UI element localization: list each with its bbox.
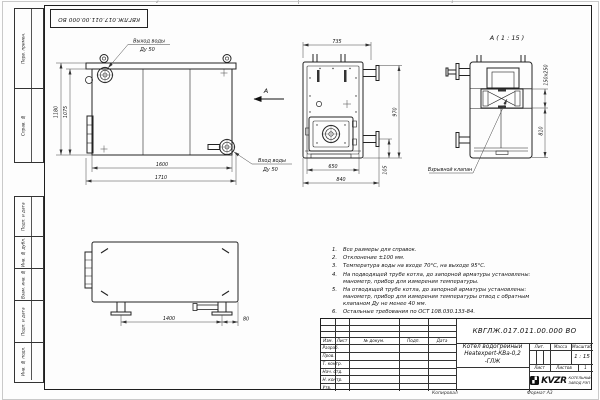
note-number: 4. xyxy=(332,272,343,286)
dim-840: 840 xyxy=(336,177,345,183)
view-detail xyxy=(446,55,532,158)
dim-1075: 1075 xyxy=(63,106,69,118)
view-side-dims xyxy=(56,45,292,186)
note-item: 3.Температура воды на входе 70°С, на вых… xyxy=(332,263,578,270)
dim-970: 970 xyxy=(393,107,399,116)
tb-header-list: Лист xyxy=(335,337,349,344)
drawing-sheet: 2 1 КВГЛЖ.017.011.00.000 ВО Перв. примен… xyxy=(0,0,600,400)
tb-role-razrab: Разраб. xyxy=(321,344,349,352)
note-text: Все размеры для справок. xyxy=(343,247,578,254)
tb-lit-label: Лит. xyxy=(529,343,550,350)
note-number: 2. xyxy=(332,255,343,262)
outlet-dn-label: Ду 50 xyxy=(139,47,155,53)
note-number: 6. xyxy=(332,309,343,316)
note-item: 2.Отклонение ±100 мм. xyxy=(332,255,578,262)
outlet-label: Выход воды xyxy=(133,39,165,45)
view-detail-dims xyxy=(429,89,548,173)
tb-sheet-label: Лист xyxy=(529,364,550,371)
tb-company-logo: ▞ KVZR КОТЕЛЬНЫЙ ЗАВОД РЭП xyxy=(529,371,593,390)
format-label: Формат А3 xyxy=(527,391,553,396)
note-text: На подводящей трубе котла, до запорной а… xyxy=(343,272,578,286)
note-item: 1.Все размеры для справок. xyxy=(332,247,578,254)
tb-scale-value: 1 : 15 xyxy=(571,350,593,364)
tb-company-line2: ЗАВОД РЭП xyxy=(569,381,592,385)
dim-1180: 1180 xyxy=(54,106,60,118)
view-front xyxy=(303,54,379,158)
tb-role-nkontr: Н. контр. xyxy=(321,375,349,383)
tb-scale-label: Масштаб xyxy=(571,343,593,350)
tb-company-name: КОТЕЛЬНЫЙ ЗАВОД РЭП xyxy=(569,376,592,385)
view-side xyxy=(86,55,237,156)
tb-product-name: Котел водогрейный Heatexpert-КВа-0,2 -ГЛ… xyxy=(456,343,529,367)
tb-role-nachotd: Нач. отд. xyxy=(321,368,349,376)
tb-mass-label: Масса xyxy=(550,343,571,350)
kvzr-logo-icon: ▞ xyxy=(530,376,539,385)
note-item: 5.На отводящей трубе котла, до запорной … xyxy=(332,287,578,308)
dim-1710: 1710 xyxy=(155,175,167,181)
dim-80: 80 xyxy=(243,317,249,323)
view-top xyxy=(85,242,238,315)
tb-company-line1: КОТЕЛЬНЫЙ xyxy=(569,376,592,380)
tb-header-docnum: № докум. xyxy=(349,337,399,344)
dim-810: 810 xyxy=(539,126,545,135)
view-arrow-label: А xyxy=(263,87,268,95)
tb-header-data: Дата xyxy=(428,337,456,344)
dim-105: 105 xyxy=(383,165,389,174)
note-number: 5. xyxy=(332,287,343,308)
tb-role-prov: Пров. xyxy=(321,352,349,360)
kvzr-logo-text: KVZR xyxy=(541,376,566,386)
note-number: 3. xyxy=(332,263,343,270)
explosion-valve-callout: Взрывной клапан xyxy=(428,167,472,173)
tb-role-utv: Утв. xyxy=(321,383,349,391)
note-text: Температура воды на входе 70°С, на выход… xyxy=(343,263,578,270)
detail-view-title: А ( 1 : 15 ) xyxy=(489,34,524,42)
note-text: Отклонение ±100 мм. xyxy=(343,255,578,262)
note-text: На отводящей трубе котла, до запорной ар… xyxy=(343,287,578,308)
view-top-dims xyxy=(121,302,238,326)
note-number: 1. xyxy=(332,247,343,254)
view-front-dims xyxy=(303,42,402,187)
dim-735: 735 xyxy=(332,39,341,45)
tb-doc-number: КВГЛЖ.017.011.00.000 ВО xyxy=(456,319,593,343)
note-item: 6.Остальные требования по ОСТ 108.030.13… xyxy=(332,309,578,316)
dim-650: 650 xyxy=(328,164,337,170)
tb-product-name-line2: Heatexpert-КВа-0,2 -ГЛЖ xyxy=(456,351,529,365)
tb-header-podp: Подп. xyxy=(399,337,428,344)
note-item: 4.На подводящей трубе котла, до запорной… xyxy=(332,272,578,286)
copied-label: Копировал xyxy=(432,391,458,396)
tb-sheets-label: Листов xyxy=(550,364,578,371)
tb-sheets-value: 1 xyxy=(578,364,593,371)
tb-product-name-line1: Котел водогрейный xyxy=(463,344,523,351)
tb-role-tkontr: Т. контр. xyxy=(321,360,349,368)
title-block: Изм. Лист № докум. Подп. Дата Разраб. Пр… xyxy=(320,318,592,390)
tb-header-izm: Изм. xyxy=(321,337,335,344)
inlet-dn-label: Ду 50 xyxy=(262,167,278,173)
inlet-label: Вход воды xyxy=(258,158,286,164)
notes-list: 1.Все размеры для справок. 2.Отклонение … xyxy=(332,247,578,317)
dim-1400: 1400 xyxy=(163,316,175,322)
dim-1600: 1600 xyxy=(156,162,168,168)
note-text: Остальные требования по ОСТ 108.030.133-… xyxy=(343,309,578,316)
dim-150x250: 150х250 xyxy=(544,64,550,85)
